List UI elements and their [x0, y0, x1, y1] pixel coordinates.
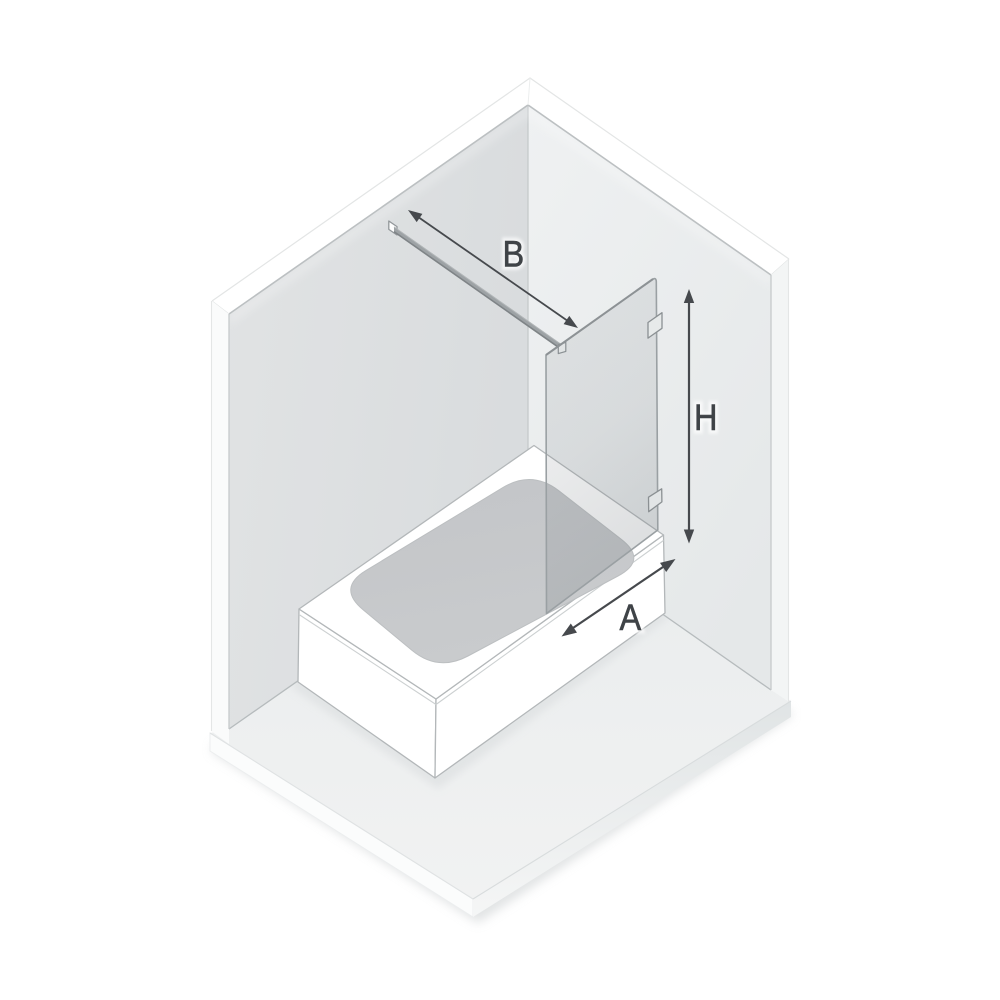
- svg-text:H: H: [694, 397, 718, 438]
- svg-text:B: B: [502, 233, 524, 274]
- svg-text:A: A: [620, 597, 642, 638]
